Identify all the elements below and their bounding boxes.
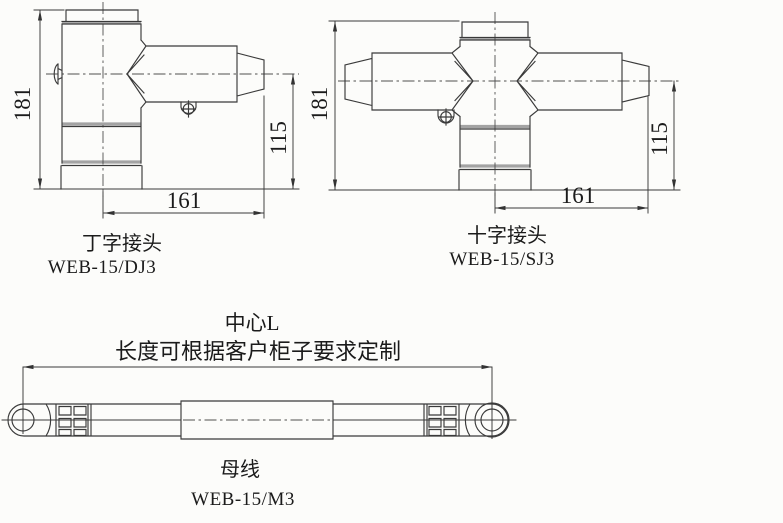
t-joint-drawing: 181 115 161 丁字接头 WEB-15/DJ3 xyxy=(10,2,299,278)
cross-joint-dimension-arrows xyxy=(333,21,676,210)
t-joint-caption: 丁字接头 xyxy=(82,232,162,255)
t-joint-width-dim: 161 xyxy=(167,188,202,213)
t-joint-branch-dim: 115 xyxy=(266,121,291,155)
cross-joint-drawing: 181 115 161 十字接头 WEB-15/SJ3 xyxy=(307,12,680,270)
cross-joint-caption: 十字接头 xyxy=(467,224,547,247)
busbar-drawing: 中心L 长度可根据客户柜子要求定制 母线 WEB-15/M3 xyxy=(2,311,516,510)
busbar-model: WEB-15/M3 xyxy=(191,489,295,510)
t-joint-body-bands xyxy=(62,124,141,162)
technical-drawing-canvas: 181 115 161 丁字接头 WEB-15/DJ3 181 115 161 … xyxy=(0,0,783,523)
t-joint-dimension-arrows xyxy=(38,10,295,215)
busbar-length-note: 长度可根据客户柜子要求定制 xyxy=(115,339,401,364)
cross-joint-dimension-lines xyxy=(329,21,680,213)
busbar-center-label: 中心L xyxy=(225,311,280,335)
t-joint-centerlines xyxy=(46,2,299,197)
busbar-length-dimension xyxy=(23,367,492,413)
cross-joint-width-dim: 161 xyxy=(561,183,596,208)
cross-joint-branch-dim: 115 xyxy=(647,122,672,156)
busbar-caption: 母线 xyxy=(220,458,260,481)
cross-joint-model: WEB-15/SJ3 xyxy=(449,249,554,270)
t-joint-dimension-lines xyxy=(34,10,299,218)
busbar-rib-squares xyxy=(59,407,456,436)
drawing-sheet: 181 115 161 丁字接头 WEB-15/DJ3 181 115 161 … xyxy=(0,0,783,523)
t-joint-height-dim: 181 xyxy=(10,87,35,122)
cross-joint-height-dim: 181 xyxy=(307,87,332,122)
t-joint-model: WEB-15/DJ3 xyxy=(48,257,156,278)
